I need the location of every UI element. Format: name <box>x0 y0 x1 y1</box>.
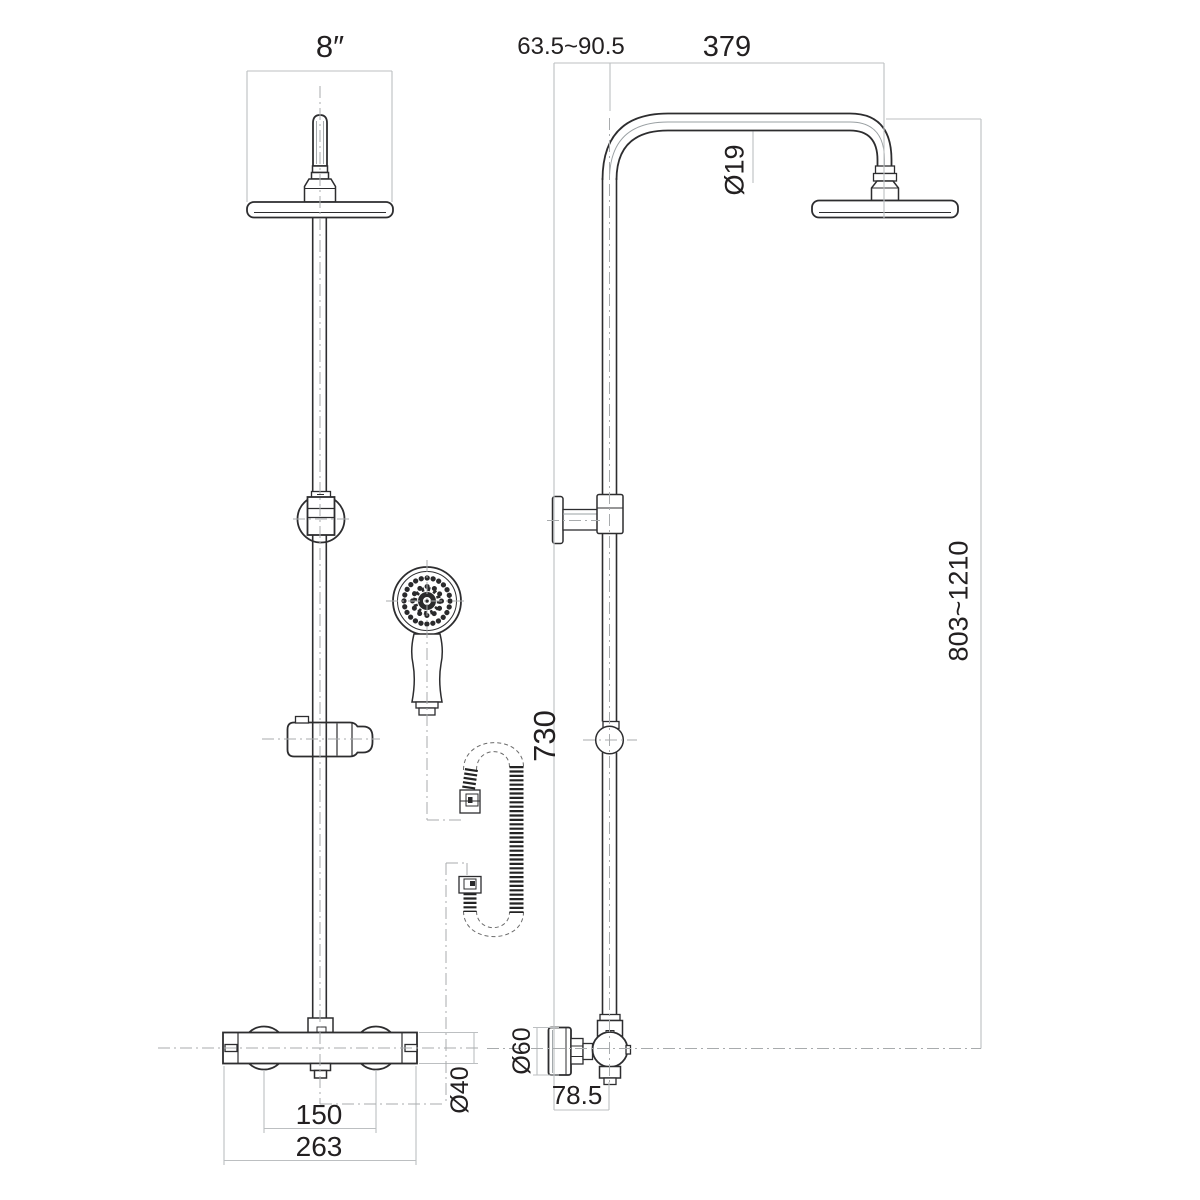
dim-knob-diameter-label: Ø60 <box>508 1027 536 1074</box>
knob-nut <box>571 1039 583 1065</box>
mixer-valve-side <box>549 1015 631 1085</box>
head-disc-side <box>812 201 958 218</box>
wall-bracket-glide <box>308 492 335 536</box>
dim-valve-width-label: 263 <box>296 1131 343 1162</box>
slider-lock-button <box>296 717 309 724</box>
dim-riser-diameter-label: Ø19 <box>719 144 749 195</box>
dim-wall-to-riser-label: 78.5 <box>552 1080 603 1110</box>
front-view <box>223 115 524 1078</box>
valve-knob-side <box>549 1028 572 1076</box>
rain-head-side <box>812 166 958 218</box>
shower-hose <box>459 743 524 937</box>
hand-shower-handle <box>412 634 443 702</box>
wall-bracket-side <box>553 495 624 544</box>
technical-drawing-canvas: 8″ 63.5~90.5 379 Ø19 803~1210 730 Ø60 78… <box>0 0 1200 1200</box>
dim-valve-to-bracket-label: 730 <box>527 710 562 762</box>
dim-arm-projection-label: 379 <box>703 31 751 63</box>
head-cone-side <box>872 181 899 201</box>
centerlines <box>158 86 981 1104</box>
dim-inlet-centres-label: 150 <box>296 1099 343 1130</box>
dim-riser-height-label: 803~1210 <box>943 541 973 662</box>
dim-wall-offset-label: 63.5~90.5 <box>517 33 624 60</box>
dim-valve-body-diameter-label: Ø40 <box>446 1066 474 1113</box>
shower-dimension-drawing: 8″ 63.5~90.5 379 Ø19 803~1210 730 Ø60 78… <box>0 0 1200 1200</box>
slider-holder <box>288 717 373 757</box>
dim-head-width-label: 8″ <box>316 29 344 64</box>
